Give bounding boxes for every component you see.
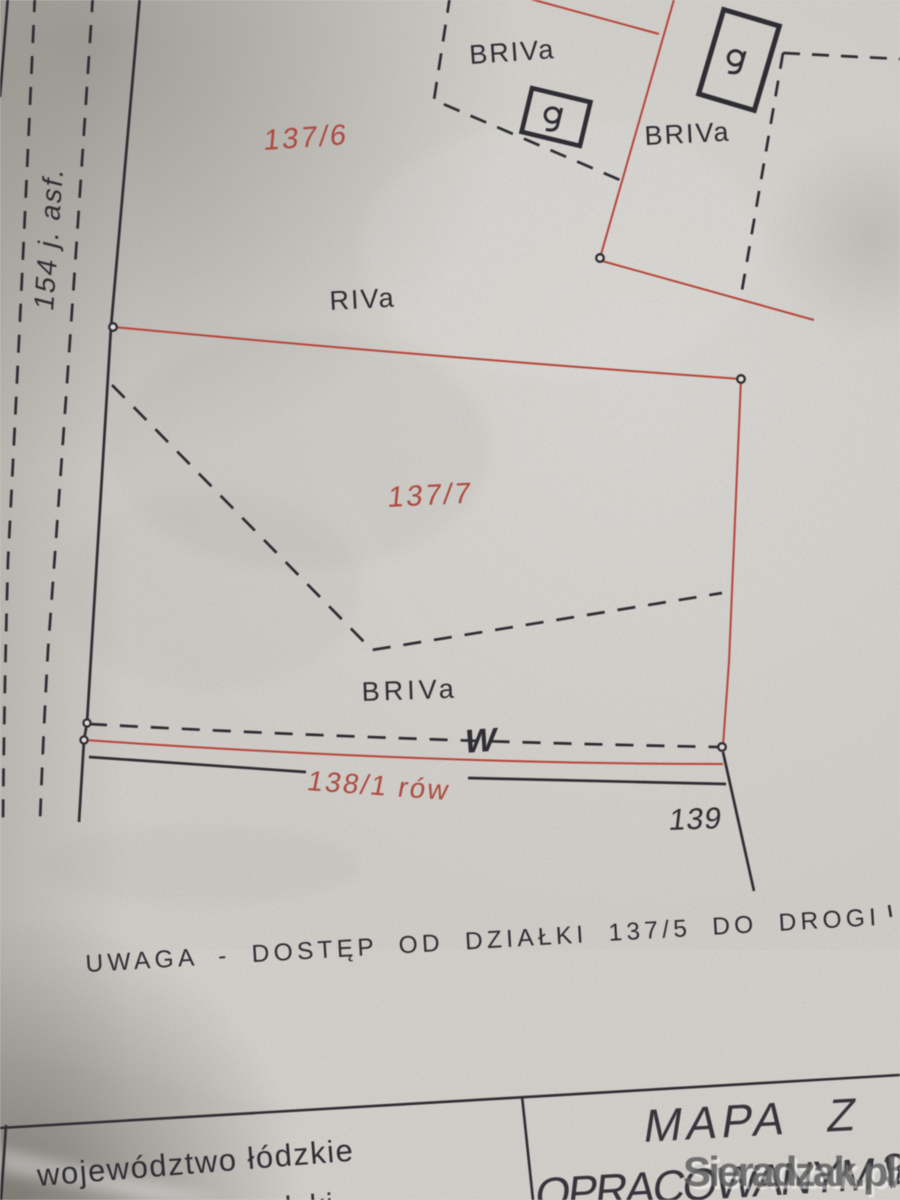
svg-text:Sieradzak.pl: Sieradzak.pl — [683, 1148, 895, 1195]
svg-text:BRIVa: BRIVa — [644, 117, 731, 151]
svg-text:BRIVa: BRIVa — [361, 674, 458, 707]
svg-text:139: 139 — [667, 802, 724, 837]
svg-text:137/6: 137/6 — [262, 119, 350, 157]
svg-text:RIVa: RIVa — [329, 283, 397, 316]
svg-text:BRIVa: BRIVa — [468, 34, 556, 70]
svg-text:137/7: 137/7 — [386, 478, 474, 514]
